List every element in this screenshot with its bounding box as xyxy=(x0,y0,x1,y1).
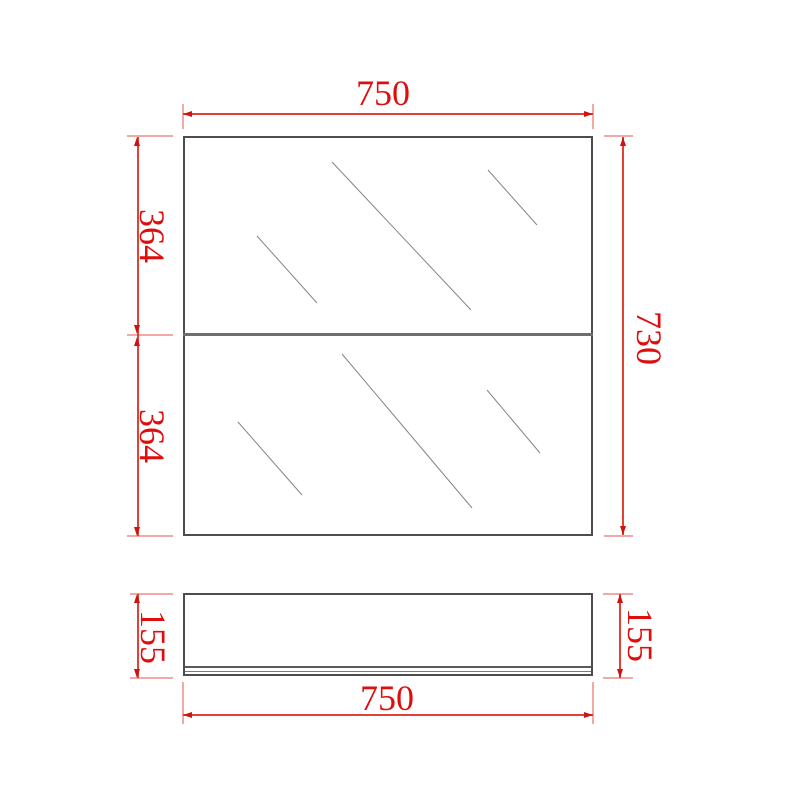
dim-label-front-height: 730 xyxy=(631,288,667,388)
hatch-line xyxy=(332,162,471,310)
dim-label-side-width: 750 xyxy=(337,680,437,716)
hatch-line xyxy=(342,354,472,508)
dim-label-front-width: 750 xyxy=(333,75,433,111)
extension-line xyxy=(604,135,633,137)
dim-line-front-width xyxy=(183,113,593,115)
extension-line xyxy=(127,334,173,336)
dim-label-side-height-right: 155 xyxy=(622,585,658,685)
side-view-glass-line-2 xyxy=(185,671,591,672)
dim-label-side-height-left: 155 xyxy=(135,587,171,687)
dim-arrow xyxy=(620,526,626,535)
dim-arrow xyxy=(584,712,593,718)
hatch-line xyxy=(257,236,317,303)
dim-arrow xyxy=(134,137,140,146)
hatch-line xyxy=(488,170,537,225)
dim-arrow xyxy=(134,337,140,346)
side-view-glass-line xyxy=(185,666,591,668)
dim-arrow xyxy=(584,111,593,117)
side-view-outline xyxy=(183,593,593,676)
dim-arrow xyxy=(620,137,626,146)
dim-arrow xyxy=(134,527,140,536)
hatch-line xyxy=(487,390,540,453)
dim-line-front-height xyxy=(622,137,624,535)
dim-arrow xyxy=(183,712,192,718)
extension-line xyxy=(604,535,633,537)
dim-label-panel-bottom: 364 xyxy=(134,386,170,486)
hatch-line xyxy=(238,422,302,495)
dim-label-panel-top: 364 xyxy=(134,186,170,286)
dim-arrow xyxy=(134,325,140,334)
glass-hatch-marks xyxy=(183,136,593,536)
technical-drawing: 750 730 364 364 155 155 750 xyxy=(0,0,800,800)
dim-arrow xyxy=(183,111,192,117)
